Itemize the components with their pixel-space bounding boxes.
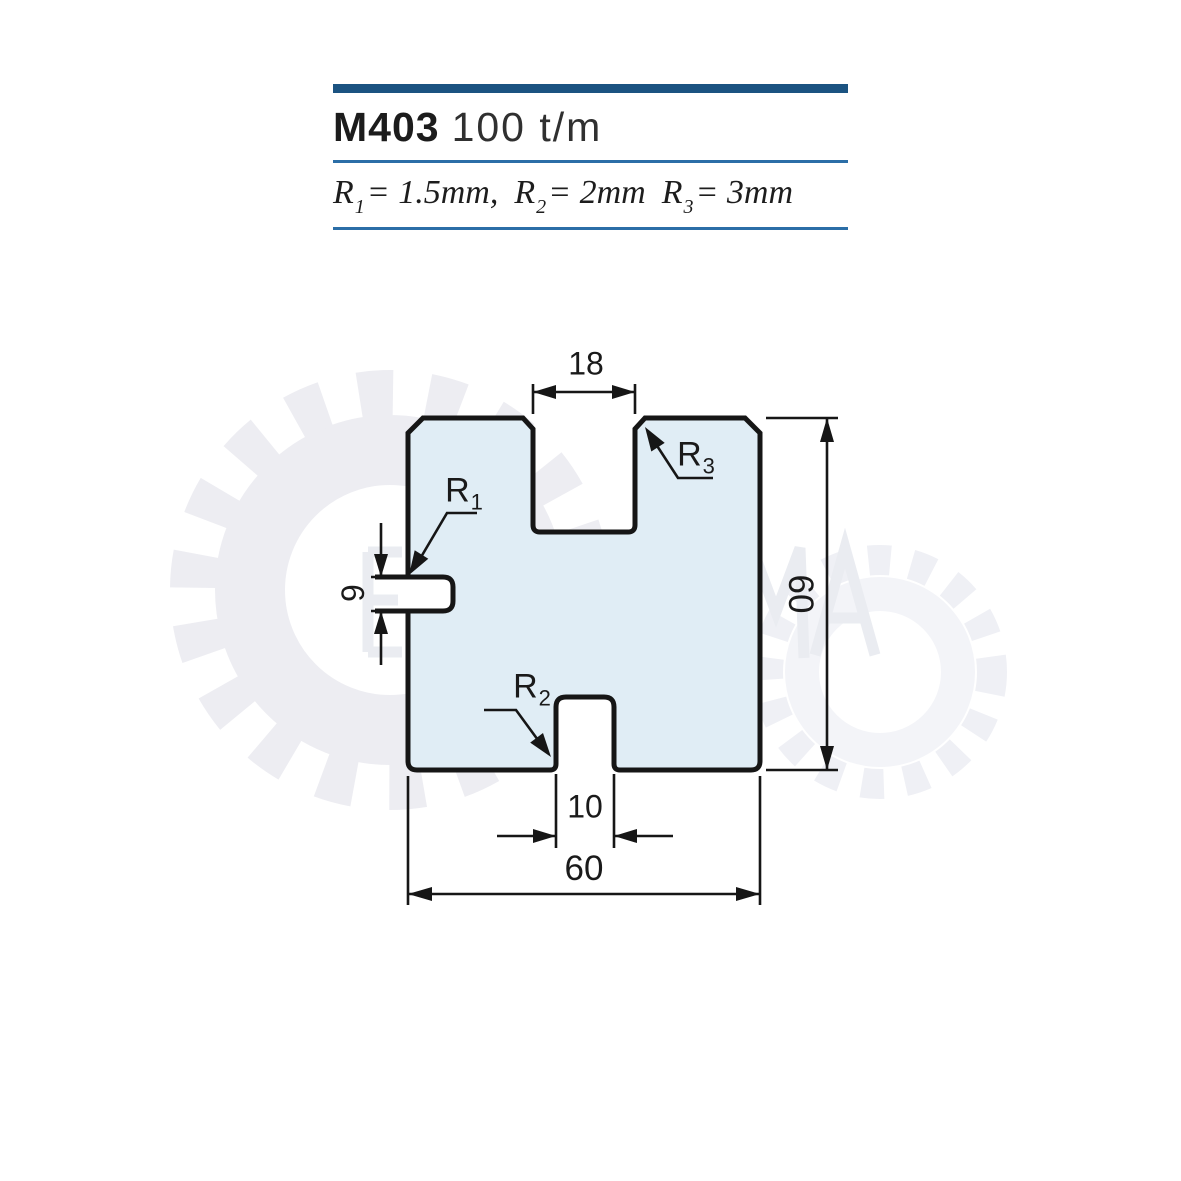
- dim-overall-height: 60: [780, 575, 820, 614]
- dim-top-slot-width: 18: [568, 346, 604, 383]
- die-cross-section-drawing: [0, 0, 1181, 1181]
- dim-side-notch-height: 6: [334, 584, 371, 602]
- r1-base: R: [445, 472, 470, 511]
- page: { "header": { "model": "M403", "capacity…: [0, 0, 1181, 1181]
- r1-sub: 1: [471, 490, 483, 516]
- dim-bottom-slot-width: 10: [567, 789, 603, 826]
- r3-base: R: [677, 436, 702, 475]
- r2-base: R: [513, 668, 538, 707]
- r2-sub: 2: [539, 686, 551, 712]
- r3-sub: 3: [703, 454, 715, 480]
- radius-label-r3: R 3: [677, 436, 715, 475]
- radius-label-r1: R 1: [445, 472, 483, 511]
- side-notch-lip-lines: [375, 577, 410, 611]
- dim-overall-width: 60: [565, 849, 604, 889]
- radius-label-r2: R 2: [513, 668, 551, 707]
